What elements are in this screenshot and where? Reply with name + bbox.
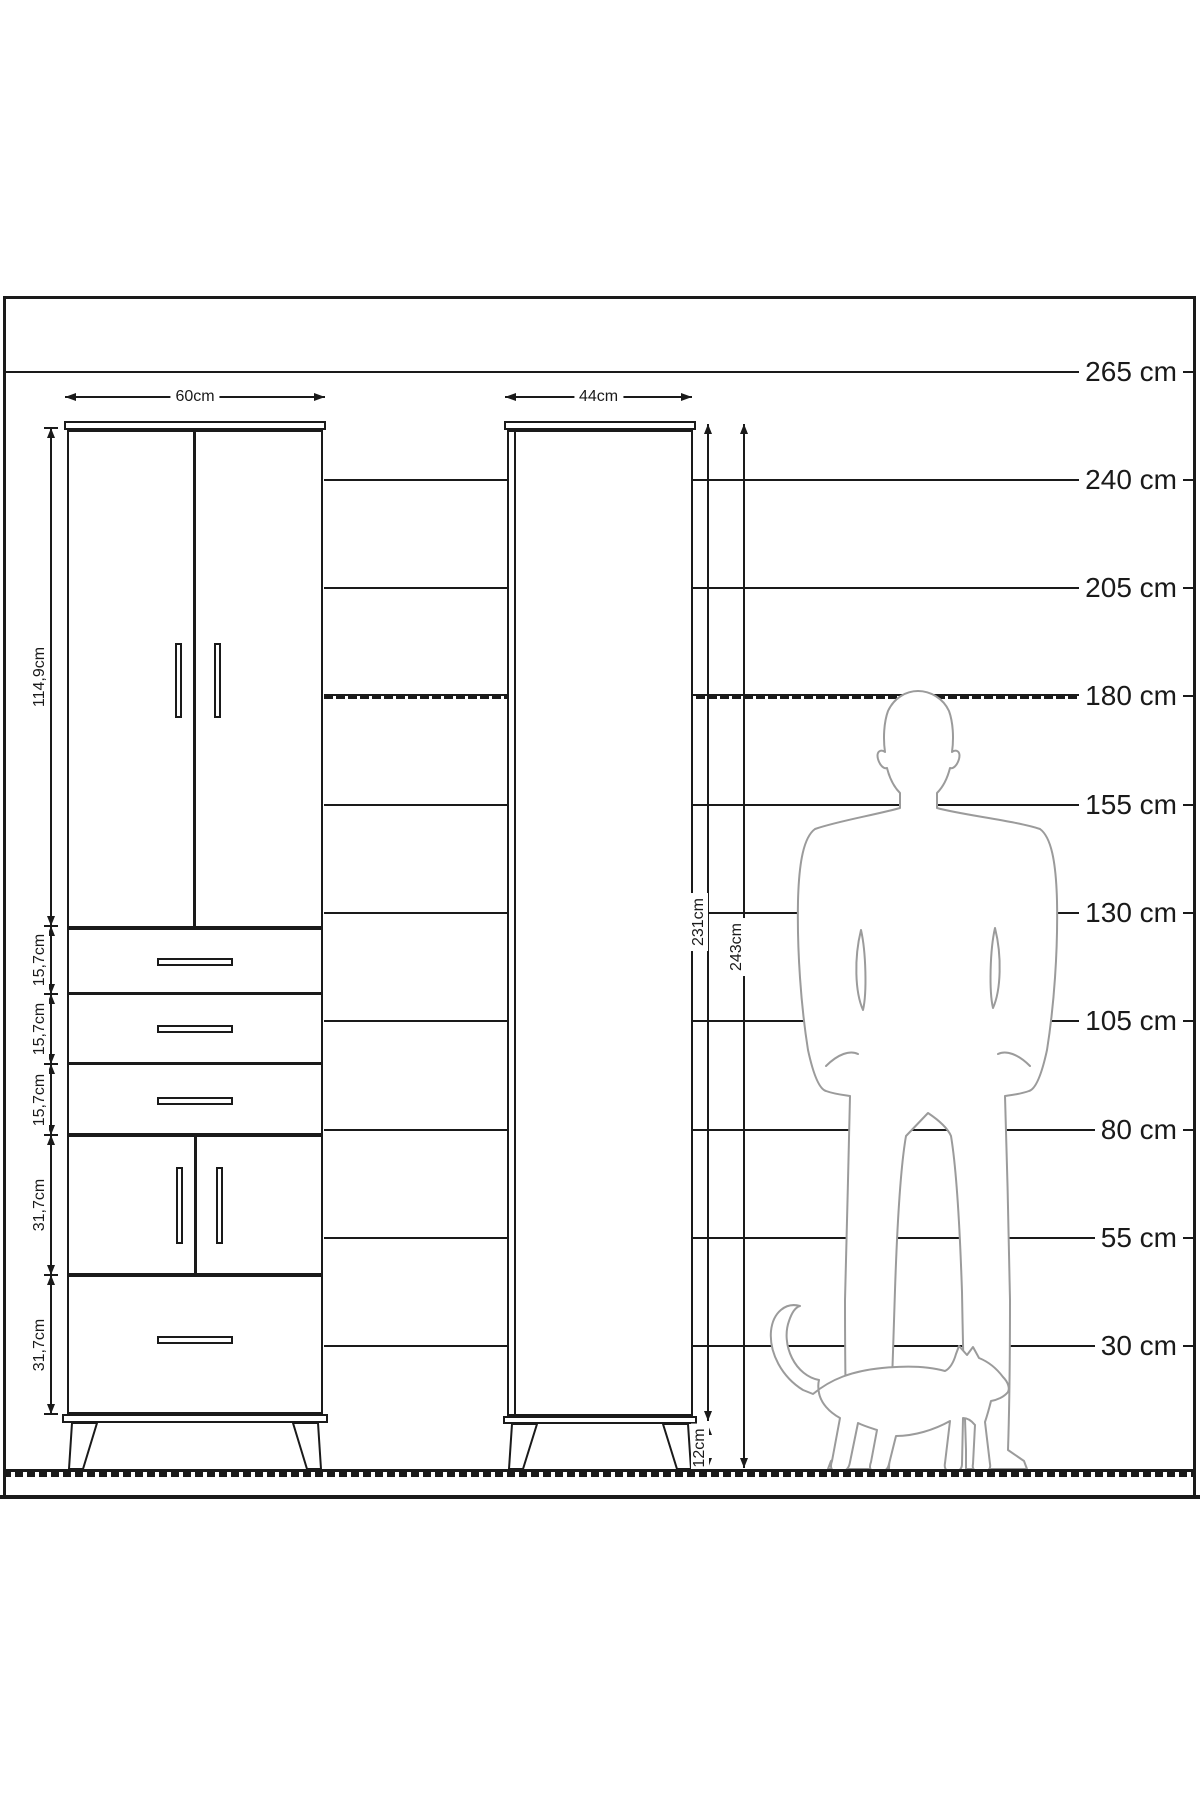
scale-edge-tick xyxy=(1183,912,1195,914)
height-scale-row: 205 cm xyxy=(324,572,1195,604)
door-handle xyxy=(216,1167,223,1244)
cabinet-width-dim-label: 60cm xyxy=(170,388,219,406)
scale-edge-tick xyxy=(1183,587,1195,589)
dimension-arrow xyxy=(314,393,325,401)
drawer-handle xyxy=(157,958,233,966)
door-gap xyxy=(194,1137,197,1275)
height-reference-line xyxy=(324,1237,1095,1239)
cabinet-leg xyxy=(663,1424,691,1469)
frame-left-border xyxy=(3,296,6,1499)
height-scale-label: 80 cm xyxy=(1095,1114,1183,1146)
section-height-label: 15,7cm xyxy=(31,998,49,1060)
height-scale-label: 240 cm xyxy=(1079,464,1183,496)
height-scale-row: 130 cm xyxy=(324,897,1195,929)
height-scale-row: 30 cm xyxy=(324,1330,1195,1362)
man-hand-detail xyxy=(856,930,865,1010)
scale-edge-tick xyxy=(1183,479,1195,481)
frame-top-border xyxy=(3,296,1196,299)
drawer-handle xyxy=(157,1025,233,1033)
dimension-arrow xyxy=(704,424,712,434)
scale-edge-tick xyxy=(1183,804,1195,806)
height-scale-row: 180 cm xyxy=(324,680,1195,712)
man-hand-detail xyxy=(991,928,1000,1008)
dimension-arrow xyxy=(740,1458,748,1468)
height-scale-label: 55 cm xyxy=(1095,1222,1183,1254)
section-height-label: 15,7cm xyxy=(31,1068,49,1130)
cabinet-leg xyxy=(509,1424,537,1469)
divider xyxy=(67,992,323,995)
diagram-canvas: 265 cm240 cm205 cm180 cm155 cm130 cm105 … xyxy=(0,0,1200,1800)
cabinet-body xyxy=(507,430,693,1416)
dimension-arrow xyxy=(704,1411,712,1421)
height-reference-line xyxy=(324,479,1079,481)
divider xyxy=(67,1062,323,1065)
scale-edge-tick xyxy=(1183,695,1195,697)
height-reference-line-dashed xyxy=(324,694,1079,699)
cabinet-kick-board xyxy=(62,1414,328,1423)
door-gap xyxy=(193,432,196,926)
height-scale-label: 130 cm xyxy=(1079,897,1183,929)
cabinet-top-board xyxy=(504,421,696,430)
dimension-arrow xyxy=(740,424,748,434)
dimension-arrow xyxy=(681,393,692,401)
height-reference-line xyxy=(324,804,1079,806)
section-height-label: 15,7cm xyxy=(31,929,49,991)
height-scale-label: 30 cm xyxy=(1095,1330,1183,1362)
cabinet-leg xyxy=(69,1423,97,1469)
man-jacket-hem xyxy=(998,1053,1030,1067)
cabinet-top-board xyxy=(64,421,326,430)
scale-edge-tick xyxy=(1183,1129,1195,1131)
body-height-label: 231cm xyxy=(690,893,708,951)
man-jacket-hem xyxy=(826,1053,858,1067)
door-handle xyxy=(176,1167,183,1244)
height-reference-line xyxy=(3,371,1079,373)
dimension-arrow xyxy=(47,1404,55,1414)
frame-bottom-line xyxy=(0,1495,1200,1499)
dimension-arrow xyxy=(47,1275,55,1285)
height-scale-row: 105 cm xyxy=(324,1005,1195,1037)
height-reference-line xyxy=(324,1020,1079,1022)
scale-edge-tick xyxy=(1183,1345,1195,1347)
scale-edge-tick xyxy=(1183,1020,1195,1022)
scale-edge-tick xyxy=(1183,1237,1195,1239)
height-scale-label: 180 cm xyxy=(1079,680,1183,712)
scale-edge-tick xyxy=(1183,371,1195,373)
height-reference-line xyxy=(324,587,1079,589)
height-scale-row: 80 cm xyxy=(324,1114,1195,1146)
ground-hatch xyxy=(3,1472,1196,1477)
total-height-label: 243cm xyxy=(728,918,746,976)
height-reference-line xyxy=(324,1129,1095,1131)
height-scale-label: 205 cm xyxy=(1079,572,1183,604)
cabinet-width-dim-label: 44cm xyxy=(574,388,623,406)
leg-height-label: 12cm xyxy=(691,1423,709,1472)
door-gap xyxy=(514,432,516,1414)
drawer-handle xyxy=(157,1336,233,1344)
dimension-arrow xyxy=(47,1135,55,1145)
height-scale-row: 240 cm xyxy=(324,464,1195,496)
dimension-arrow xyxy=(505,393,516,401)
dimension-arrow xyxy=(65,393,76,401)
height-reference-line xyxy=(324,1345,1095,1347)
section-height-label: 114,9cm xyxy=(31,642,49,712)
height-scale-label: 265 cm xyxy=(1079,356,1183,388)
section-height-label: 31,7cm xyxy=(31,1174,49,1236)
divider xyxy=(67,926,323,930)
divider xyxy=(67,1273,323,1277)
height-scale-row: 265 cm xyxy=(3,356,1195,388)
door-handle xyxy=(214,643,221,718)
height-scale-label: 155 cm xyxy=(1079,789,1183,821)
height-scale-row: 55 cm xyxy=(324,1222,1195,1254)
dimension-arrow xyxy=(47,428,55,438)
section-height-label: 31,7cm xyxy=(31,1313,49,1375)
height-scale-label: 105 cm xyxy=(1079,1005,1183,1037)
cabinet-kick-board xyxy=(503,1416,697,1424)
door-handle xyxy=(175,643,182,718)
cabinet-leg xyxy=(293,1423,321,1469)
drawer-handle xyxy=(157,1097,233,1105)
height-scale-row: 155 cm xyxy=(324,789,1195,821)
